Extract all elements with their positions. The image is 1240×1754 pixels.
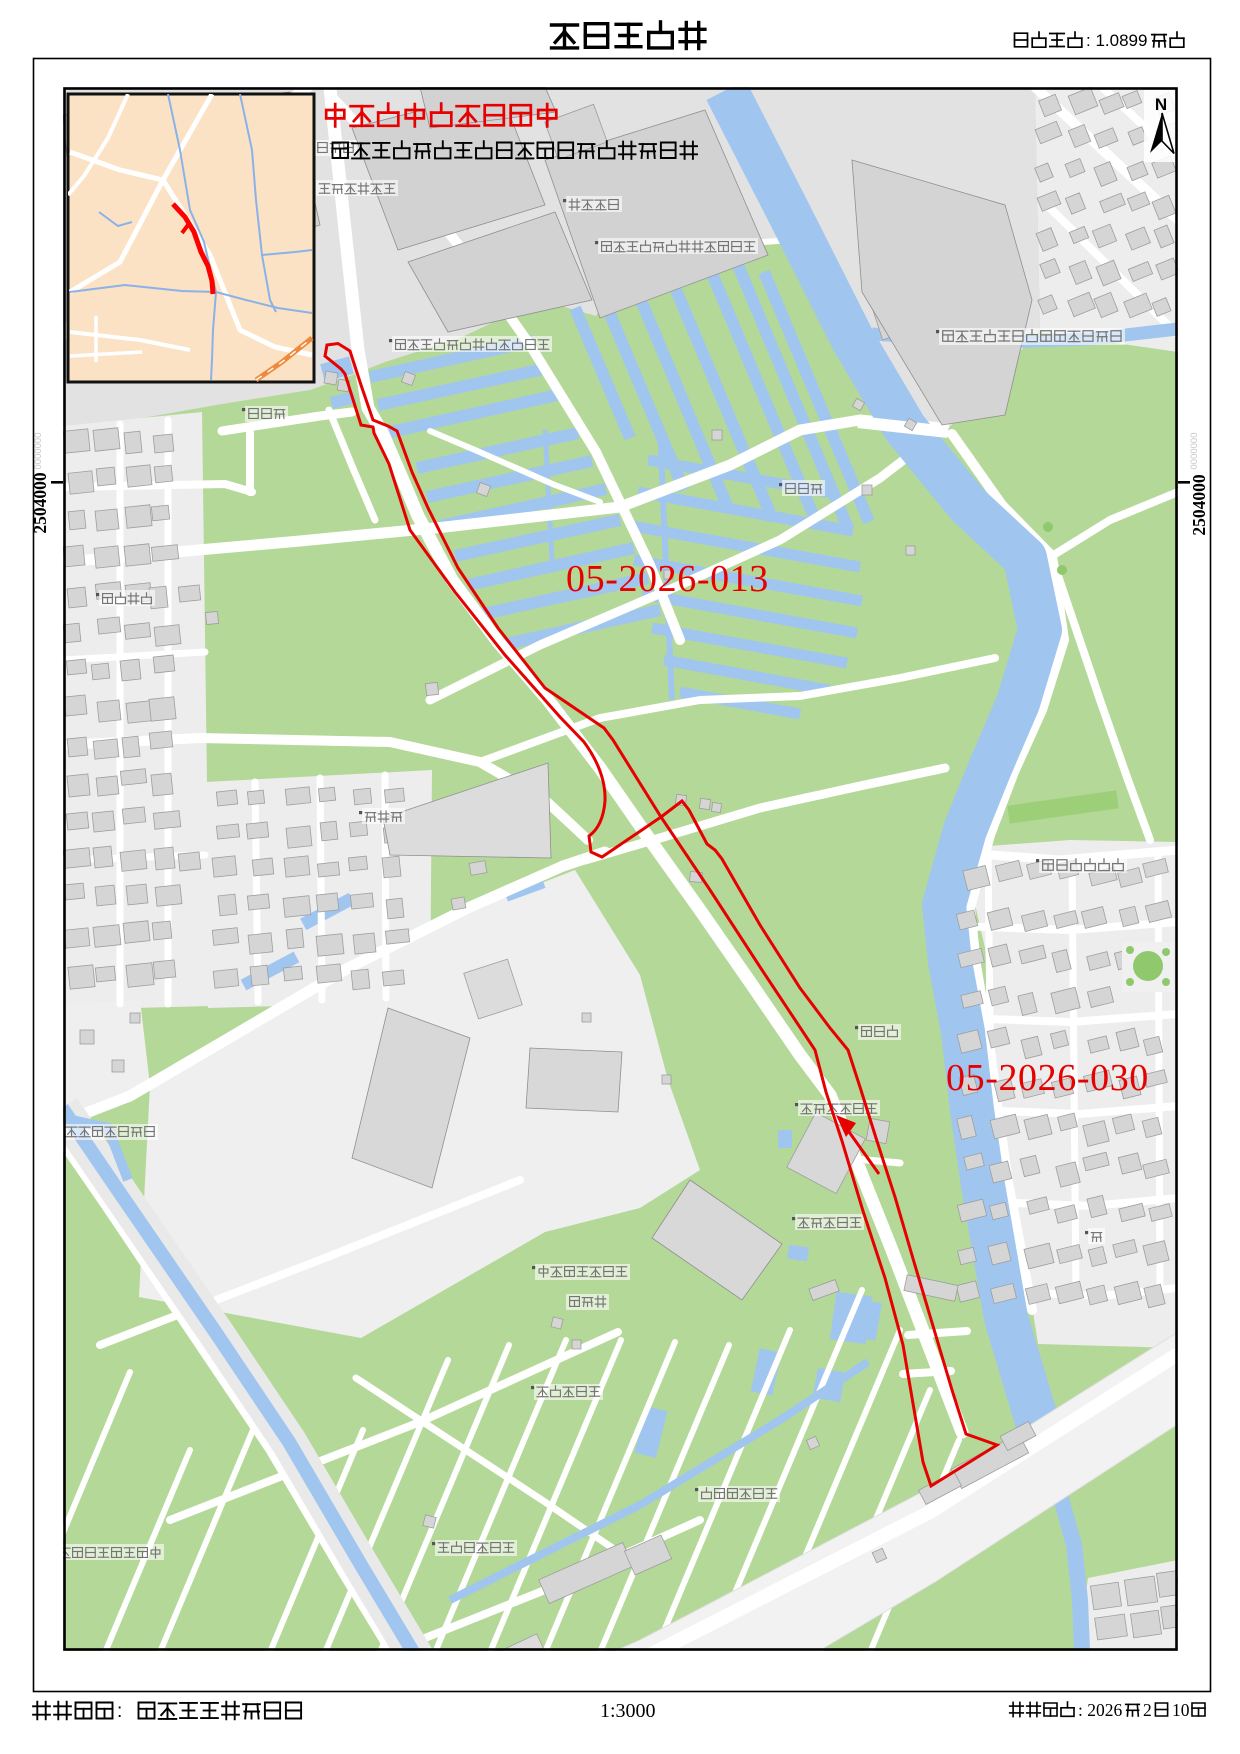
- svg-text:05-2026-013: 05-2026-013: [566, 558, 769, 600]
- svg-text:0000000: 0000000: [33, 433, 44, 470]
- svg-text:: 1.0899: : 1.0899: [1086, 31, 1147, 50]
- svg-text:0000000: 0000000: [1189, 433, 1200, 470]
- svg-text:2504000: 2504000: [1189, 474, 1209, 536]
- svg-text:10: 10: [1172, 1700, 1190, 1720]
- svg-text:N: N: [1155, 95, 1167, 114]
- svg-text:2504000: 2504000: [30, 472, 50, 534]
- svg-text::: :: [117, 1701, 122, 1722]
- svg-text:1:3000: 1:3000: [600, 1700, 656, 1722]
- svg-text:05-2026-030: 05-2026-030: [946, 1057, 1149, 1099]
- svg-text:2: 2: [1143, 1700, 1152, 1720]
- svg-text:: 2026: : 2026: [1078, 1700, 1122, 1720]
